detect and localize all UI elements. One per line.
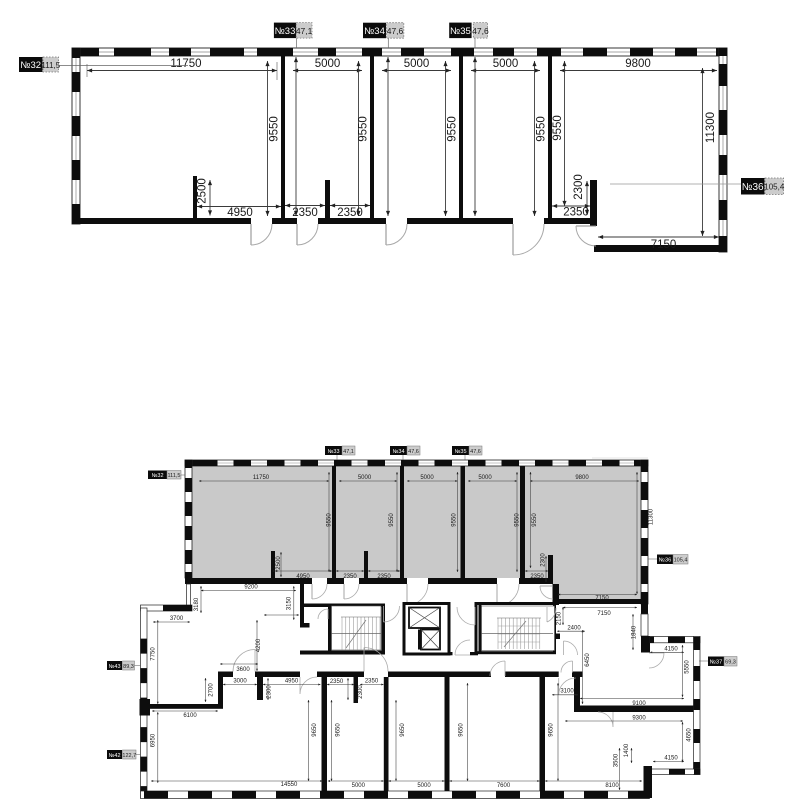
svg-text:111,5: 111,5 xyxy=(168,473,181,479)
svg-text:89,3: 89,3 xyxy=(123,664,134,670)
svg-text:5550: 5550 xyxy=(685,660,691,674)
svg-text:№36: №36 xyxy=(742,182,764,193)
svg-text:8100: 8100 xyxy=(605,783,619,789)
svg-text:5000: 5000 xyxy=(493,58,519,70)
svg-text:2350: 2350 xyxy=(337,207,363,219)
svg-text:11750: 11750 xyxy=(253,475,270,481)
svg-text:6100: 6100 xyxy=(183,713,197,719)
svg-text:2300: 2300 xyxy=(358,685,364,699)
svg-text:3000: 3000 xyxy=(233,679,247,685)
svg-text:7600: 7600 xyxy=(497,783,511,789)
svg-text:9550: 9550 xyxy=(327,513,333,527)
svg-text:3600: 3600 xyxy=(236,667,250,673)
svg-text:2350: 2350 xyxy=(530,574,544,580)
svg-text:9650: 9650 xyxy=(312,723,318,737)
svg-text:№43: №43 xyxy=(108,664,120,670)
svg-text:2350: 2350 xyxy=(292,207,318,219)
svg-text:9550: 9550 xyxy=(452,513,458,527)
svg-text:11300: 11300 xyxy=(649,508,655,525)
svg-text:2150: 2150 xyxy=(557,611,563,625)
svg-text:7150: 7150 xyxy=(597,611,611,617)
svg-text:47,6: 47,6 xyxy=(408,449,419,455)
svg-text:69,3: 69,3 xyxy=(725,660,736,666)
svg-text:4950: 4950 xyxy=(227,207,253,219)
svg-text:2500: 2500 xyxy=(276,556,282,570)
svg-text:5000: 5000 xyxy=(417,783,431,789)
svg-text:№34: №34 xyxy=(392,449,404,455)
svg-text:47,1: 47,1 xyxy=(296,26,313,36)
svg-text:105,4: 105,4 xyxy=(674,558,688,564)
svg-text:47,6: 47,6 xyxy=(472,26,489,36)
svg-text:105,4: 105,4 xyxy=(764,183,785,192)
svg-text:№42: №42 xyxy=(108,753,120,759)
svg-text:11300: 11300 xyxy=(705,112,717,143)
svg-text:2350: 2350 xyxy=(365,679,379,685)
svg-text:№35: №35 xyxy=(454,449,466,455)
svg-text:9650: 9650 xyxy=(400,723,406,737)
svg-text:7150: 7150 xyxy=(651,239,677,251)
svg-text:2350: 2350 xyxy=(377,574,391,580)
svg-text:9550: 9550 xyxy=(515,513,521,527)
svg-text:4950: 4950 xyxy=(285,679,299,685)
svg-text:5000: 5000 xyxy=(352,783,366,789)
svg-text:5000: 5000 xyxy=(315,58,341,70)
svg-text:№33: №33 xyxy=(275,26,296,37)
svg-text:9100: 9100 xyxy=(632,701,646,707)
svg-text:4150: 4150 xyxy=(664,755,678,761)
svg-text:9550: 9550 xyxy=(552,115,564,141)
svg-text:2350: 2350 xyxy=(563,207,589,219)
svg-text:4200: 4200 xyxy=(256,638,262,652)
svg-text:5000: 5000 xyxy=(478,475,492,481)
svg-text:9550: 9550 xyxy=(269,116,281,142)
svg-text:4950: 4950 xyxy=(296,574,310,580)
svg-text:2700: 2700 xyxy=(209,683,215,697)
svg-text:7750: 7750 xyxy=(150,647,156,661)
svg-text:№32: №32 xyxy=(20,60,41,71)
svg-text:9550: 9550 xyxy=(532,513,538,527)
svg-text:7150: 7150 xyxy=(595,596,609,602)
svg-text:№36: №36 xyxy=(659,558,672,564)
svg-text:14550: 14550 xyxy=(281,782,298,788)
svg-text:9300: 9300 xyxy=(632,716,646,722)
svg-text:1840: 1840 xyxy=(632,625,638,639)
svg-text:6950: 6950 xyxy=(150,733,156,747)
svg-text:2350: 2350 xyxy=(330,679,344,685)
svg-text:№32: №32 xyxy=(151,473,163,479)
svg-text:47,1: 47,1 xyxy=(343,449,354,455)
svg-text:47,6: 47,6 xyxy=(470,449,481,455)
svg-text:2400: 2400 xyxy=(567,625,581,631)
svg-text:1400: 1400 xyxy=(624,743,630,757)
svg-text:3100: 3100 xyxy=(560,688,574,694)
svg-text:№37: №37 xyxy=(710,660,723,666)
svg-text:111,5: 111,5 xyxy=(41,61,60,70)
svg-text:9550: 9550 xyxy=(389,513,395,527)
svg-text:2350: 2350 xyxy=(343,574,357,580)
svg-text:9650: 9650 xyxy=(336,723,342,737)
svg-text:№34: №34 xyxy=(364,26,385,37)
svg-text:3180: 3180 xyxy=(194,597,200,611)
svg-text:4150: 4150 xyxy=(664,646,678,652)
svg-text:3700: 3700 xyxy=(170,616,184,622)
svg-text:4650: 4650 xyxy=(687,728,693,742)
svg-text:9650: 9650 xyxy=(549,723,555,737)
svg-text:2300: 2300 xyxy=(541,553,547,567)
svg-text:5000: 5000 xyxy=(358,475,372,481)
svg-text:2300: 2300 xyxy=(573,174,585,200)
svg-text:3500: 3500 xyxy=(613,753,619,767)
svg-text:9800: 9800 xyxy=(575,475,589,481)
svg-text:2300: 2300 xyxy=(267,685,273,699)
svg-text:№35: №35 xyxy=(450,26,471,37)
svg-text:6450: 6450 xyxy=(585,653,591,667)
svg-text:9650: 9650 xyxy=(459,723,465,737)
svg-text:9200: 9200 xyxy=(244,585,258,591)
svg-text:9800: 9800 xyxy=(625,58,651,70)
svg-text:3150: 3150 xyxy=(287,596,293,610)
svg-text:9550: 9550 xyxy=(447,116,459,142)
svg-text:№33: №33 xyxy=(327,449,339,455)
svg-text:5000: 5000 xyxy=(420,475,434,481)
svg-text:9550: 9550 xyxy=(358,116,370,142)
svg-text:5000: 5000 xyxy=(404,58,430,70)
svg-text:11750: 11750 xyxy=(170,58,201,70)
svg-text:9550: 9550 xyxy=(536,116,548,142)
svg-text:2500: 2500 xyxy=(197,178,209,204)
svg-text:47,6: 47,6 xyxy=(387,26,404,36)
svg-text:122,7: 122,7 xyxy=(122,753,136,759)
